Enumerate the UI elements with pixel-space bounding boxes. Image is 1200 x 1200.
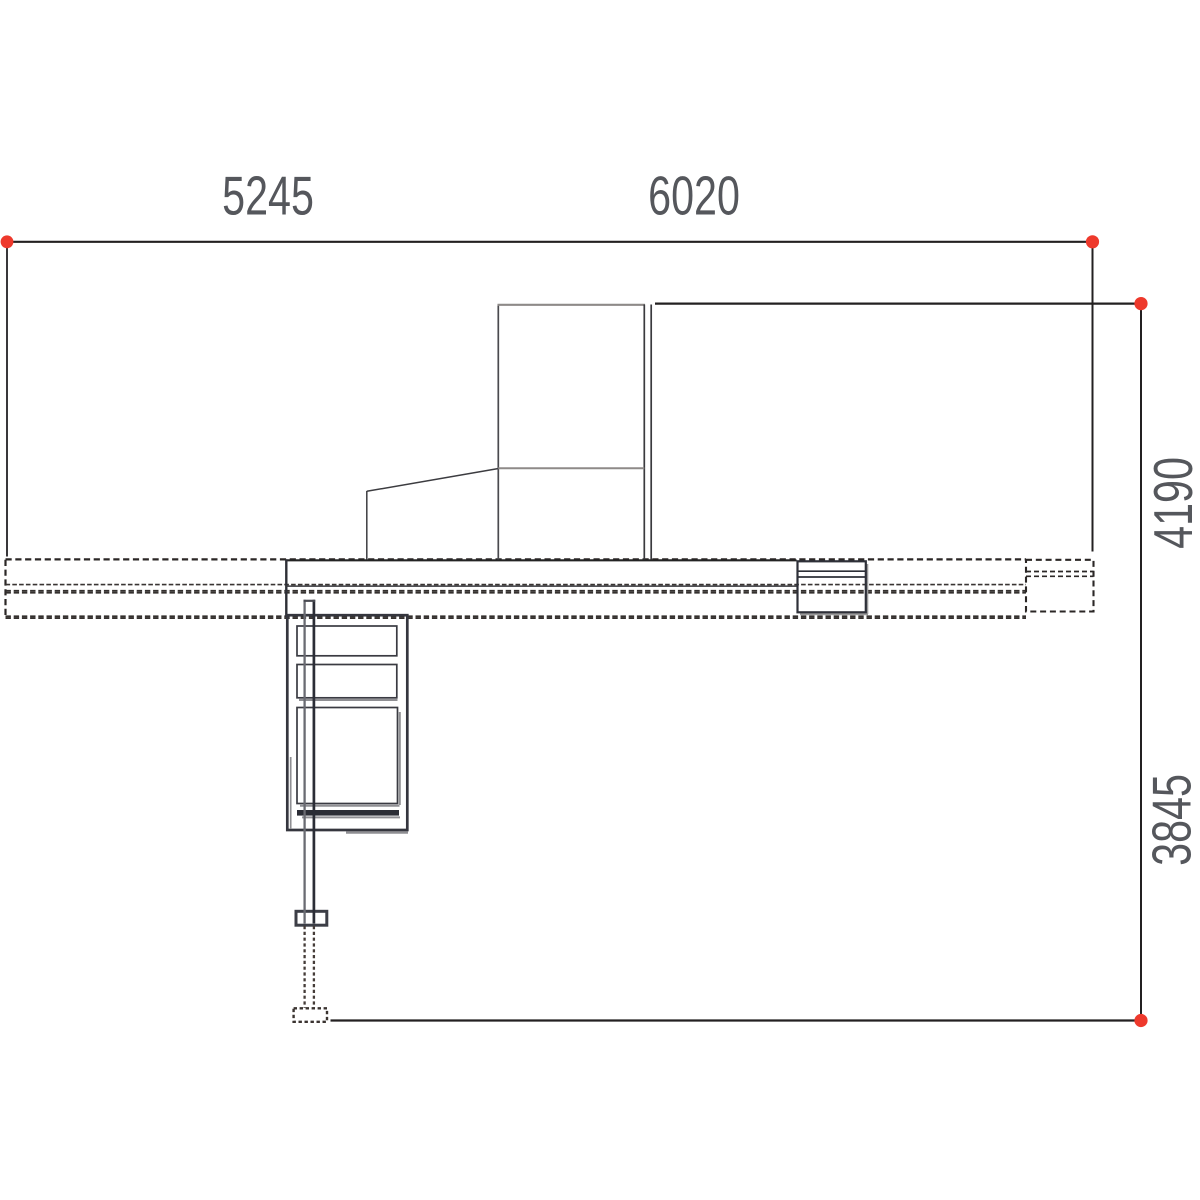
svg-text:5245: 5245: [222, 166, 314, 227]
svg-text:6020: 6020: [648, 166, 740, 227]
svg-text:4190: 4190: [1143, 457, 1200, 549]
svg-text:3845: 3845: [1142, 774, 1200, 866]
